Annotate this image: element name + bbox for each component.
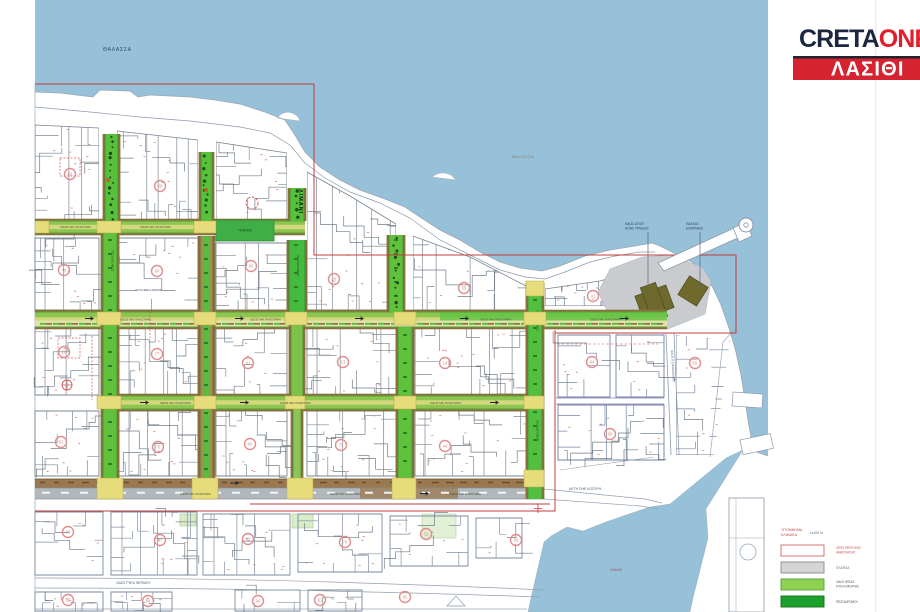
svg-text:99: 99 (246, 537, 251, 542)
svg-text:ΟΡΙΟ ΠΕΡΙΟΧΗΣ: ΟΡΙΟ ΠΕΡΙΟΧΗΣ (836, 546, 861, 550)
svg-text:90: 90 (256, 599, 261, 604)
svg-text:ΠΛΑΤΕΙΑ: ΠΛΑΤΕΙΑ (836, 566, 850, 570)
svg-text:14: 14 (443, 361, 448, 366)
svg-text:ΟΔΟΣ ΝΙΚ ΠΛΑΣΤΗΡΑ: ΟΔΟΣ ΝΙΚ ΠΛΑΣΤΗΡΑ (250, 318, 281, 322)
svg-text:79: 79 (343, 540, 348, 545)
svg-text:ΑΓΙΑΣ ΤΡΙΑΔΟΣ: ΑΓΙΑΣ ΤΡΙΑΔΟΣ (625, 227, 649, 231)
svg-text:51: 51 (59, 440, 64, 445)
svg-text:94: 94 (590, 360, 595, 365)
svg-text:ΟΔΟΣ ΝΙΚ ΠΛΑΣΤΗΡΑ: ΟΔΟΣ ΝΙΚ ΠΛΑΣΤΗΡΑ (450, 492, 481, 496)
svg-text:ΟΔΟΣ ΝΙΚ ΠΛΑΣΤΗΡΑ: ΟΔΟΣ ΝΙΚ ΠΛΑΣΤΗΡΑ (330, 492, 361, 496)
svg-text:ΟΔΟΣ ΝΙΚ ΠΛΑΣΤΗΡΑ: ΟΔΟΣ ΝΙΚ ΠΛΑΣΤΗΡΑ (60, 225, 91, 229)
svg-text:70: 70 (156, 445, 161, 450)
svg-text:ΟΔΟΙ ΗΠΙΑΣ: ΟΔΟΙ ΗΠΙΑΣ (836, 580, 854, 584)
svg-text:26: 26 (332, 277, 337, 282)
svg-text:41: 41 (591, 294, 596, 299)
svg-text:31: 31 (246, 361, 251, 366)
svg-text:90: 90 (249, 264, 254, 269)
svg-text:ΟΔΟΣ ΝΙΚ ΠΛΑΣΤΗΡΑ: ΟΔΟΣ ΝΙΚ ΠΛΑΣΤΗΡΑ (480, 318, 511, 322)
svg-text:CRETAONE: CRETAONE (799, 25, 920, 53)
svg-text:26: 26 (62, 350, 67, 355)
svg-text:77: 77 (155, 352, 160, 357)
svg-text:ΟΔΟΣ ΝΙΚ ΠΛΑΣΤΗΡΑ: ΟΔΟΣ ΝΙΚ ΠΛΑΣΤΗΡΑ (280, 401, 311, 405)
svg-text:32: 32 (424, 532, 429, 537)
svg-text:ΟΔΟΣ ΝΙΚ ΠΛΑΣΤΗΡΑ: ΟΔΟΣ ΝΙΚ ΠΛΑΣΤΗΡΑ (180, 492, 211, 496)
svg-text:ΠΕΖΟΔΡΟΜΟΣ: ΠΕΖΟΔΡΟΜΟΣ (536, 420, 540, 441)
svg-text:66: 66 (155, 269, 160, 274)
svg-text:ΟΔΟΣ ΝΙΚ ΠΛΑΣΤΗΡΑ: ΟΔΟΣ ΝΙΚ ΠΛΑΣΤΗΡΑ (160, 401, 191, 405)
svg-text:ΠΑΛΑΙΟ: ΠΑΛΑΙΟ (686, 222, 699, 226)
svg-text:13: 13 (341, 360, 346, 365)
svg-text:ΝΑΟΣ ΑΓΙΟΥ: ΝΑΟΣ ΑΓΙΟΥ (625, 222, 645, 226)
svg-text:ΥΠΟΜΝΗΜΑ: ΥΠΟΜΝΗΜΑ (781, 528, 803, 532)
svg-text:ΑΚΤΗ ΣΗΦ ΚΟΖΥΡΗ: ΑΚΤΗ ΣΗΦ ΚΟΖΥΡΗ (569, 487, 602, 491)
svg-text:86: 86 (66, 598, 71, 603)
svg-text:ΚΥΚΛΟΦΟΡΙΑΣ: ΚΥΚΛΟΦΟΡΙΑΣ (836, 585, 859, 589)
svg-text:69: 69 (248, 442, 253, 447)
svg-text:ΘΑΛΑΣΣΑ: ΘΑΛΑΣΣΑ (103, 47, 132, 53)
svg-text:ΟΔΟΣ ΡΗΓΑ ΦΕΡΑΙΟΥ: ΟΔΟΣ ΡΗΓΑ ΦΕΡΑΙΟΥ (116, 581, 151, 585)
svg-text:ΟΔΟΣ ΝΙΚ ΠΛΑΣΤΗΡΑ: ΟΔΟΣ ΝΙΚ ΠΛΑΣΤΗΡΑ (430, 401, 461, 405)
svg-text:ΟΔΟΣ ΝΙΚ ΠΛΑΣΤΗΡΑ: ΟΔΟΣ ΝΙΚ ΠΛΑΣΤΗΡΑ (140, 225, 171, 229)
svg-text:46: 46 (62, 268, 67, 273)
svg-text:85: 85 (514, 538, 519, 543)
svg-text:80: 80 (608, 432, 613, 437)
svg-text:ΚΛΙΜΑΚΑ: ΚΛΙΜΑΚΑ (781, 533, 798, 537)
svg-text:ΛΙΜΑΝΙ: ΛΙΜΑΝΙ (297, 189, 303, 214)
svg-text:ΟΔΟΣ ΝΙΚ ΠΛΑΣΤΗΡΑ: ΟΔΟΣ ΝΙΚ ΠΛΑΣΤΗΡΑ (590, 318, 621, 322)
svg-text:ΑΝΑΠΛΑΣΗΣ: ΑΝΑΠΛΑΣΗΣ (836, 551, 855, 555)
svg-text:ΕΝΟΡΙΑΚΟ: ΕΝΟΡΙΑΚΟ (686, 227, 704, 231)
svg-text:ΛΑΣΙΘΙ: ΛΑΣΙΘΙ (831, 59, 905, 81)
svg-text:ΛΙΜΑΝΙ: ΛΙΜΑΝΙ (610, 568, 622, 572)
svg-text:49: 49 (158, 184, 163, 189)
svg-text:79: 79 (339, 443, 344, 448)
svg-text:39: 39 (462, 286, 467, 291)
svg-text:: 1x100 m: : 1x100 m (808, 531, 823, 535)
svg-text:ΘΑΛΑΣΣΑ: ΘΑΛΑΣΣΑ (512, 154, 534, 159)
svg-text:68: 68 (146, 599, 151, 604)
svg-text:82: 82 (403, 595, 408, 600)
svg-text:ΠΕΖΟΔΡΟΜΟΙ: ΠΕΖΟΔΡΟΜΟΙ (836, 600, 858, 604)
svg-text:ΠΛΑΤΕΙΑ: ΠΛΑΤΕΙΑ (238, 229, 252, 233)
svg-text:59: 59 (68, 172, 73, 177)
svg-text:27: 27 (158, 538, 163, 543)
svg-text:ΑΓΙΟΙ ΔΕΚΑ ΝΙΚΗΦ: ΑΓΙΟΙ ΔΕΚΑ ΝΙΚΗΦ (135, 288, 162, 292)
svg-text:44: 44 (443, 444, 448, 449)
svg-text:66: 66 (66, 530, 71, 535)
svg-text:91: 91 (318, 598, 323, 603)
svg-text:ΟΔΟΣ ΝΙΚ ΠΛΑΣΤΗΡΑ: ΟΔΟΣ ΝΙΚ ΠΛΑΣΤΗΡΑ (120, 318, 151, 322)
svg-text:55: 55 (693, 361, 698, 366)
